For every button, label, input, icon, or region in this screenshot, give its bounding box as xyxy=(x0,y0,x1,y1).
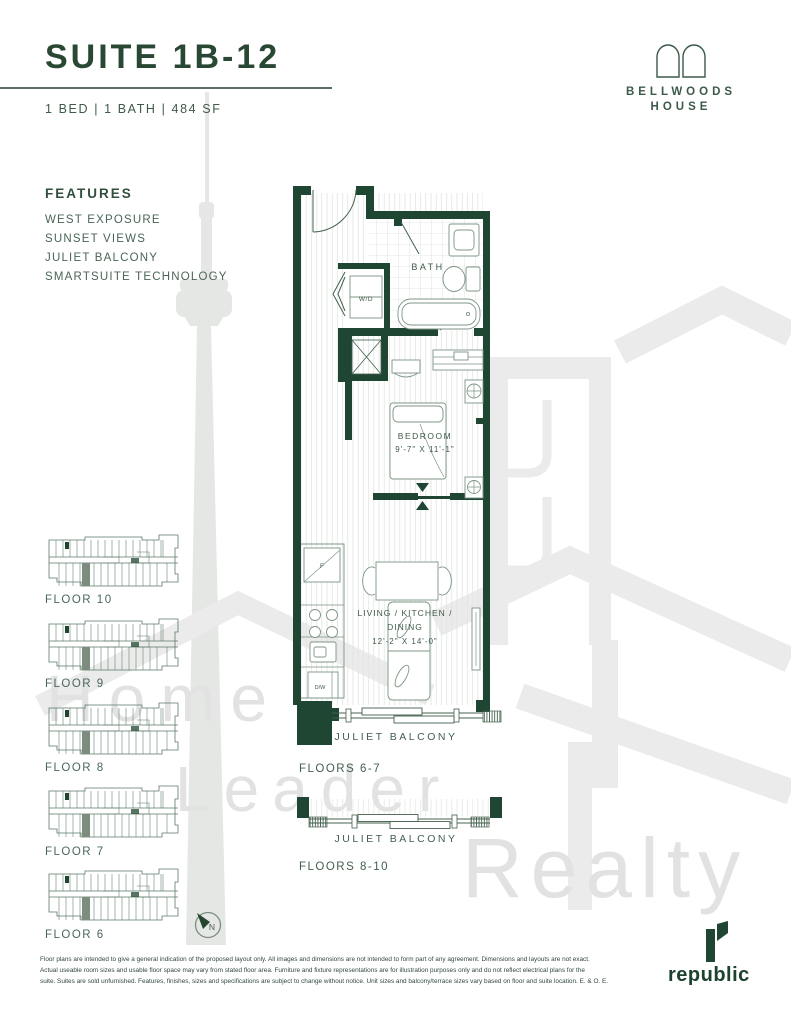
feature-item: SUNSET VIEWS xyxy=(45,230,228,249)
brand-name-line2: HOUSE xyxy=(595,101,767,113)
keyplan-floor-6 xyxy=(45,866,183,924)
north-compass-icon: N xyxy=(191,908,225,942)
balcony-label-2: JULIET BALCONY xyxy=(288,833,504,845)
balcony-elevation xyxy=(288,795,504,835)
svg-text:W/D: W/D xyxy=(359,296,373,303)
svg-text:9'-7" X 11'-1": 9'-7" X 11'-1" xyxy=(395,445,455,454)
floor-plan-page: Home Leader Realty SUITE 1B-12 1 BED | 1… xyxy=(0,0,791,1030)
svg-text:N: N xyxy=(209,922,215,932)
keyplan-floor-9 xyxy=(45,616,183,674)
keyplan-label-floor-9: FLOOR 9 xyxy=(45,678,105,690)
svg-text:D/W: D/W xyxy=(315,685,327,691)
features-heading: FEATURES xyxy=(45,186,228,201)
svg-text:BATH: BATH xyxy=(411,262,444,272)
disclaimer-line: suite. Suites are sold unfurnished. Feat… xyxy=(40,976,658,987)
features-list: WEST EXPOSURE SUNSET VIEWS JULIET BALCON… xyxy=(45,211,228,287)
svg-text:LIVING / KITCHEN /: LIVING / KITCHEN / xyxy=(358,608,453,618)
keyplan-label-floor-7: FLOOR 7 xyxy=(45,846,105,858)
suite-specs: 1 BED | 1 BATH | 484 SF xyxy=(45,102,221,116)
keyplan-label-floor-8: FLOOR 8 xyxy=(45,762,105,774)
republic-logo-icon xyxy=(703,920,729,964)
page-title: SUITE 1B-12 xyxy=(45,38,280,77)
disclaimer-line: Floor plans are intended to give a gener… xyxy=(40,954,658,965)
bellwoods-house-logo: BELLWOODS HOUSE xyxy=(595,44,767,113)
keyplan-floor-7 xyxy=(45,783,183,841)
arches-icon xyxy=(655,44,707,78)
title-divider xyxy=(0,87,332,89)
watermark-word-realty: Realty xyxy=(462,820,748,917)
svg-text:12'-2" X 14'-0": 12'-2" X 14'-0" xyxy=(372,637,438,646)
svg-text:BEDROOM: BEDROOM xyxy=(398,431,452,441)
floors-label-2: FLOORS 8-10 xyxy=(299,861,389,873)
keyplan-floor-8 xyxy=(45,700,183,758)
disclaimer-line: Actual useable room sizes and usable flo… xyxy=(40,965,658,976)
keyplan-label-floor-10: FLOOR 10 xyxy=(45,594,113,606)
feature-item: JULIET BALCONY xyxy=(45,249,228,268)
republic-logo-text: republic xyxy=(668,964,750,987)
keyplan-floor-10 xyxy=(45,532,183,590)
svg-text:DINING: DINING xyxy=(387,622,423,632)
brand-name-line1: BELLWOODS xyxy=(595,86,767,98)
svg-text:F: F xyxy=(320,563,324,570)
feature-item: WEST EXPOSURE xyxy=(45,211,228,230)
features-section: FEATURES WEST EXPOSURE SUNSET VIEWS JULI… xyxy=(45,186,228,287)
floors-label-1: FLOORS 6-7 xyxy=(299,763,381,775)
feature-item: SMARTSUITE TECHNOLOGY xyxy=(45,268,228,287)
disclaimer-text: Floor plans are intended to give a gener… xyxy=(40,954,658,988)
juliet-balcony-window xyxy=(332,708,501,723)
main-floor-plan: BATH W/D F D/W BEDROOM 9'-7" X 11'-1" LI… xyxy=(288,178,504,753)
keyplan-label-floor-6: FLOOR 6 xyxy=(45,929,105,941)
balcony-label-1: JULIET BALCONY xyxy=(288,731,504,743)
